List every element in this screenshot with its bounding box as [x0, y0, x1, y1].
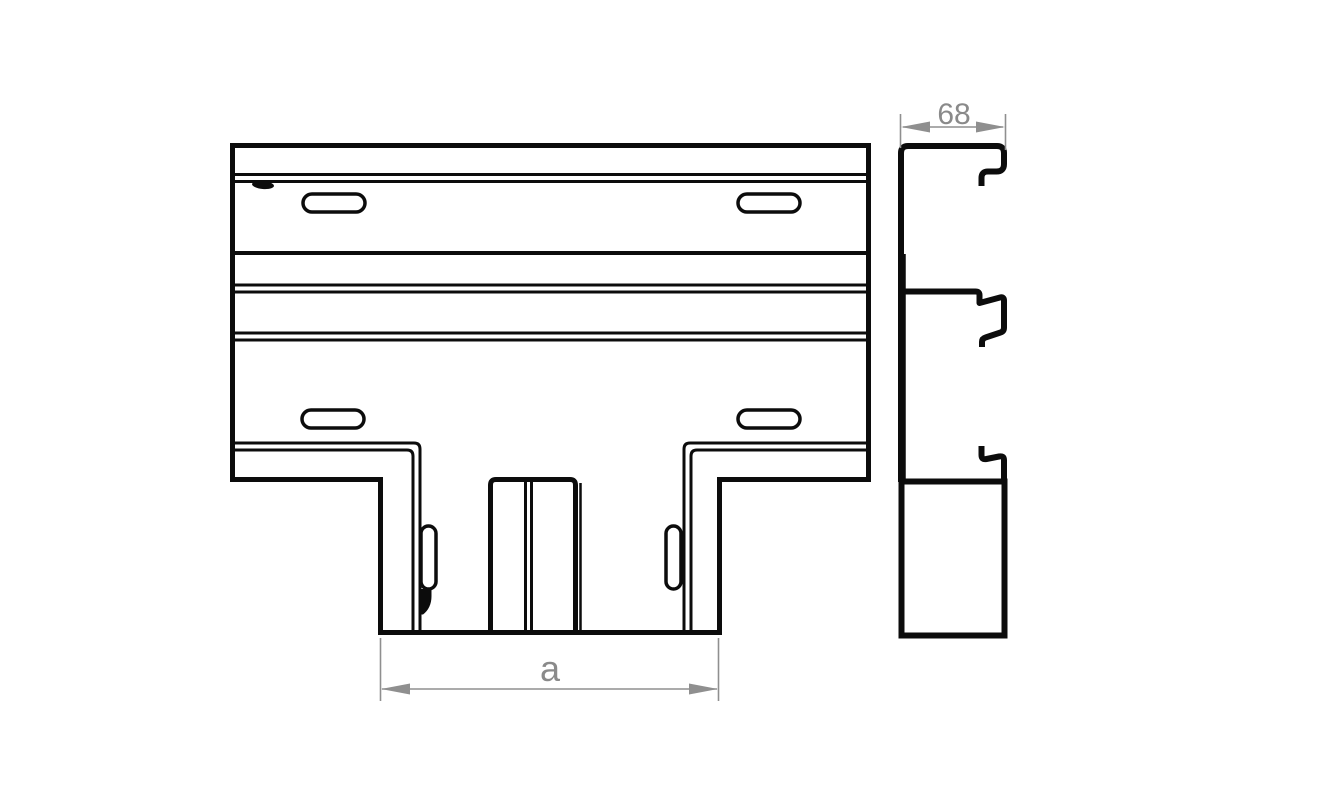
profile-base-box	[902, 482, 1005, 636]
profile-lower-hook	[982, 446, 1005, 481]
dimension-a: a	[381, 638, 719, 701]
dimension-68: 68	[901, 98, 1006, 150]
arrow-right-icon	[976, 122, 1005, 133]
fixing-slot	[738, 410, 800, 428]
profile-spine-and-top-hook	[901, 146, 1004, 482]
technical-drawing-canvas: 68 a	[0, 0, 1334, 798]
drawing-page: 68 a	[0, 0, 1334, 798]
arrow-left-icon	[381, 684, 410, 695]
arrow-right-icon	[689, 684, 718, 695]
latch-slot	[666, 526, 681, 589]
fixing-slot	[303, 194, 365, 212]
latch-slot	[421, 526, 436, 589]
arrow-left-icon	[901, 122, 930, 133]
fixing-slot	[302, 410, 364, 428]
front-view	[233, 146, 869, 633]
dimension-68-label: 68	[937, 98, 970, 131]
side-view	[901, 146, 1005, 636]
profile-mid-clip	[902, 292, 1004, 348]
dimension-a-label: a	[540, 648, 561, 689]
fixing-slot	[738, 194, 800, 212]
tee-outline	[233, 146, 869, 633]
